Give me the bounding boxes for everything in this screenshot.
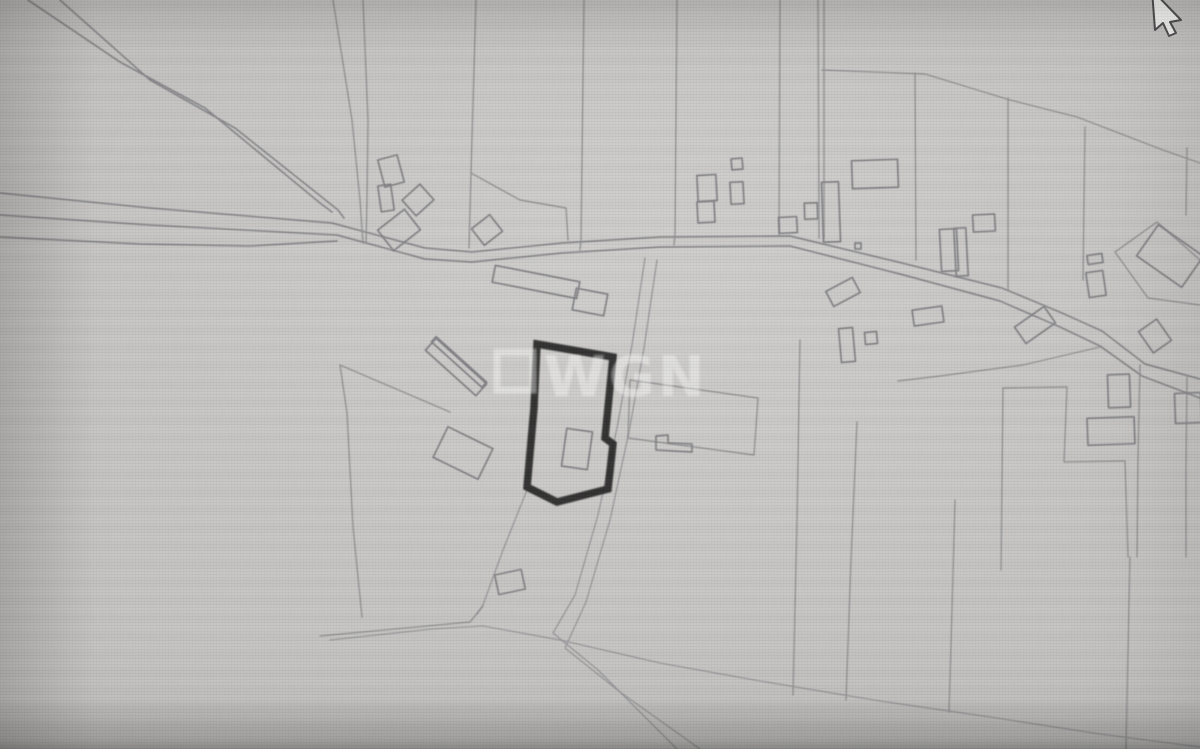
cadastral-map[interactable]: WGN [0,0,1200,749]
photo-grain-overlay [0,0,1200,749]
map-viewer-screenshot: WGN [0,0,1200,749]
